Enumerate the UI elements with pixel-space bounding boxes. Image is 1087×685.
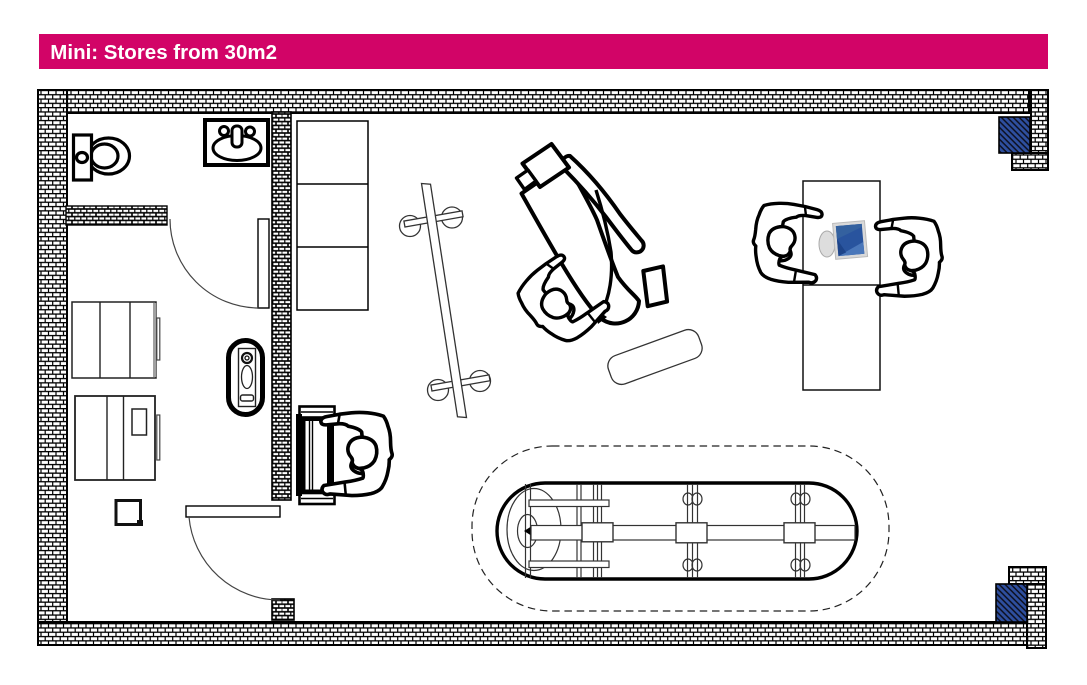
svg-text:Mini: Stores from 30m2: Mini: Stores from 30m2: [50, 41, 277, 64]
